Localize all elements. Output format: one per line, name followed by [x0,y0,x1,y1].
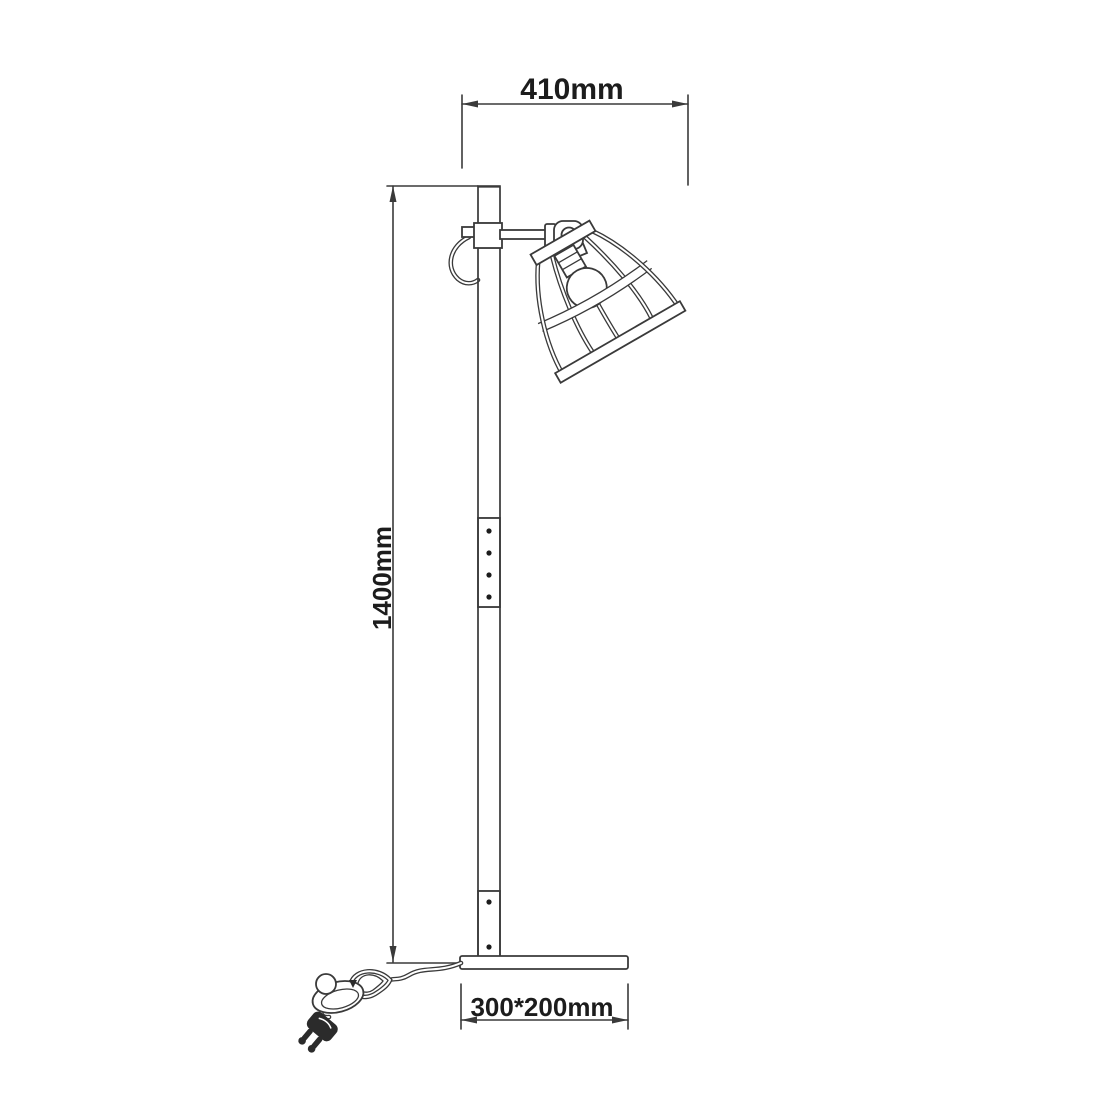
arrow-right-icon [612,1017,628,1024]
dimension-head-width: 410mm [462,73,688,185]
pole [474,186,502,957]
pole-mesh-lower [478,607,500,891]
drawing-canvas: 410mm 1400mm [0,0,1100,1100]
dimension-base: 300*200mm [461,984,628,1029]
arm-mount-block [474,223,502,248]
height-label: 1400mm [367,526,397,630]
arrow-down-icon [390,946,397,962]
base-plate [460,956,628,969]
plug-body [304,1009,340,1044]
arrow-right-icon [672,101,688,108]
pole-mesh-top [478,187,500,223]
lamp-technical-drawing: 410mm 1400mm [0,0,1100,1100]
arm [500,230,547,239]
head-width-label: 410mm [520,73,623,106]
power-plug [293,1009,340,1057]
cage-shade [498,202,686,383]
pole-mesh-upper [478,248,500,518]
arrow-up-icon [390,186,397,202]
cord-grommet [462,227,475,237]
base-size-label: 300*200mm [470,992,613,1022]
switch-button [316,974,336,994]
arrow-left-icon [462,101,478,108]
dimension-height: 1400mm [367,186,478,963]
